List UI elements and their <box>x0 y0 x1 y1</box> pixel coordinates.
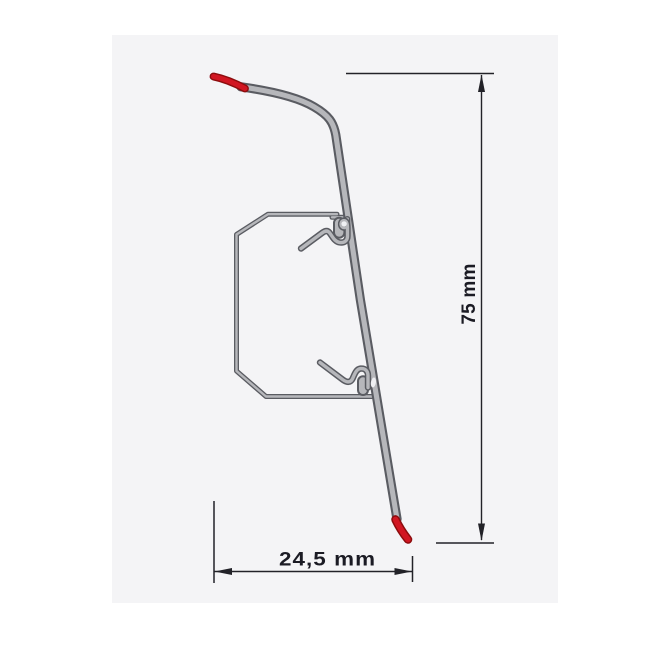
svg-text:24,5 mm: 24,5 mm <box>279 549 376 570</box>
svg-text:75 mm: 75 mm <box>459 263 480 324</box>
